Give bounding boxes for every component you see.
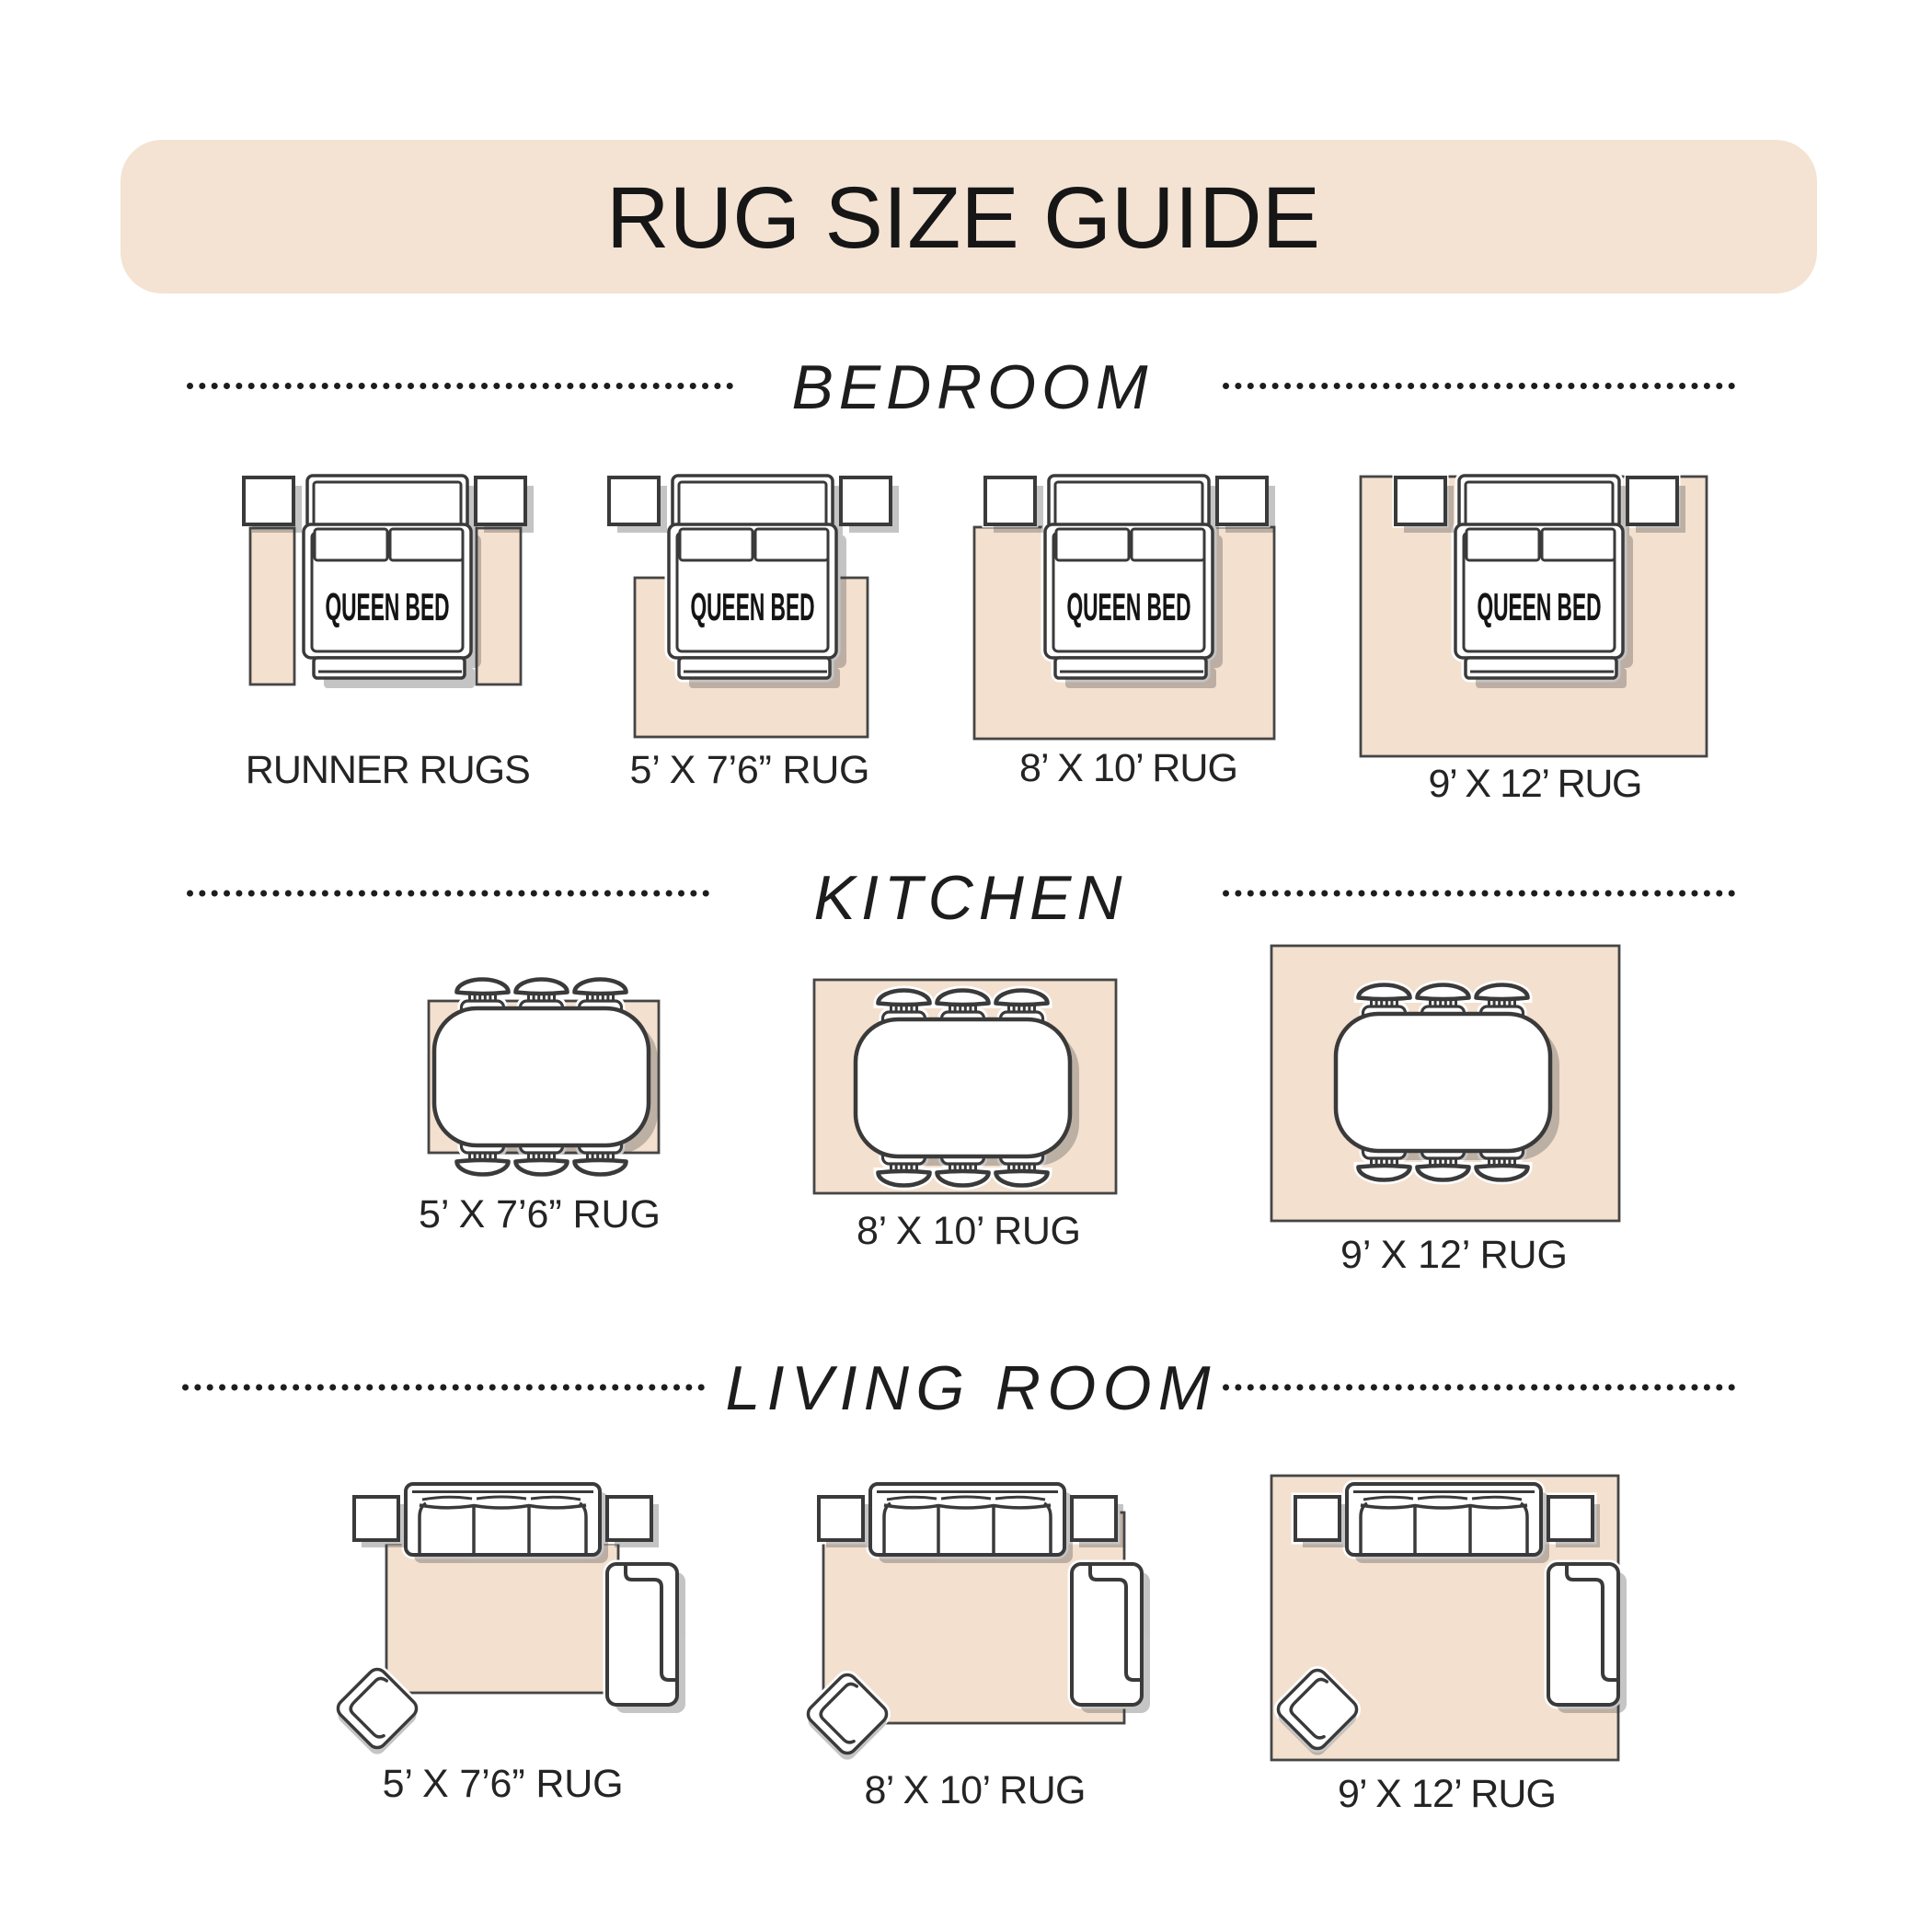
svg-text:QUEEN BED: QUEEN BED — [1067, 585, 1191, 628]
svg-text:RUNNER RUGS: RUNNER RUGS — [246, 748, 531, 792]
svg-text:QUEEN BED: QUEEN BED — [1478, 585, 1602, 628]
svg-text:9’ X 12’ RUG: 9’ X 12’ RUG — [1338, 1772, 1557, 1816]
svg-text:5’ X 7’6” RUG: 5’ X 7’6” RUG — [383, 1762, 624, 1806]
svg-text:8’ X 10’ RUG: 8’ X 10’ RUG — [857, 1209, 1081, 1253]
svg-text:5’ X 7’6” RUG: 5’ X 7’6” RUG — [630, 748, 870, 792]
svg-text:5’ X 7’6” RUG: 5’ X 7’6” RUG — [419, 1192, 661, 1236]
svg-text:QUEEN BED: QUEEN BED — [326, 585, 450, 628]
svg-text:8’ X 10’ RUG: 8’ X 10’ RUG — [1019, 746, 1238, 790]
svg-text:8’ X 10’ RUG: 8’ X 10’ RUG — [865, 1768, 1087, 1812]
svg-text:9’ X 12’ RUG: 9’ X 12’ RUG — [1340, 1233, 1568, 1277]
svg-text:9’ X 12’ RUG: 9’ X 12’ RUG — [1429, 762, 1643, 806]
svg-text:RUG SIZE GUIDE: RUG SIZE GUIDE — [606, 169, 1320, 267]
svg-text:QUEEN BED: QUEEN BED — [691, 585, 815, 628]
